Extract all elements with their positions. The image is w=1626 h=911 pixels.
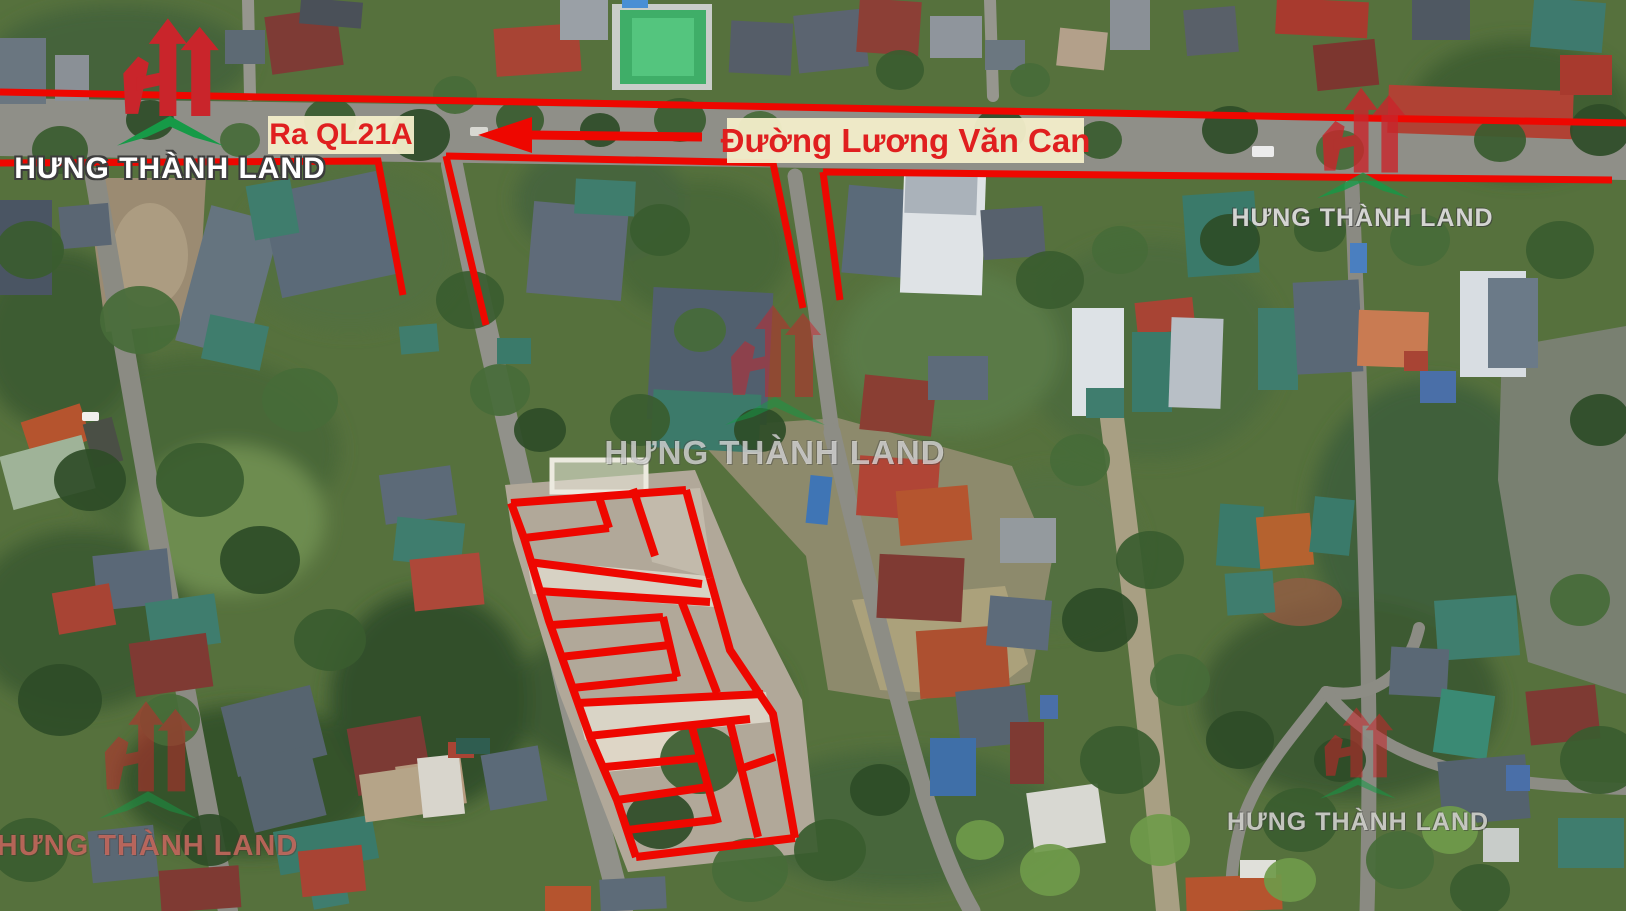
road-edge-line [823, 172, 1612, 180]
direction-arrow-tail [530, 135, 702, 137]
plot-boundary-line [686, 490, 710, 578]
watermark-center: HƯNG THÀNH LAND [630, 296, 920, 472]
watermark-text: HƯNG THÀNH LAND [0, 830, 298, 863]
plot-boundary-line [529, 562, 702, 584]
plot-boundary-line [743, 757, 775, 768]
watermark-bottom-left: HƯNG THÀNH LAND [25, 690, 270, 863]
street-name-label: Đường Lương Văn Can [727, 118, 1084, 163]
watermark-text: HƯNG THÀNH LAND [14, 152, 326, 186]
hung-thanh-land-logo [1320, 698, 1396, 808]
plot-boundary-line [524, 528, 609, 538]
plot-boundary-line [578, 694, 763, 703]
plot-boundary-line [633, 489, 655, 556]
aerial-land-advert: HƯNG THÀNH LAND HƯNG THÀNH LAND HƯNG THÀ… [0, 0, 1626, 911]
direction-arrow-head [478, 117, 532, 153]
hung-thanh-land-logo [725, 296, 825, 434]
plot-boundary-line [552, 617, 663, 625]
plot-boundary-line [692, 727, 718, 823]
plot-boundary-line [627, 820, 714, 830]
plot-boundary-line [588, 719, 750, 736]
plot-boundary-line [730, 722, 758, 837]
watermark-text: HƯNG THÀNH LAND [604, 434, 945, 472]
direction-label: Ra QL21A [268, 116, 414, 154]
plot-boundary-line [572, 677, 677, 688]
plot-boundary-line [560, 645, 670, 657]
road-edge-line [446, 156, 803, 308]
hung-thanh-land-logo [116, 12, 224, 152]
watermark-text: HƯNG THÀNH LAND [1231, 204, 1493, 233]
road-edge-line [823, 172, 840, 300]
watermark-bottom-right: HƯNG THÀNH LAND [1258, 698, 1458, 837]
hung-thanh-land-logo [99, 690, 197, 830]
watermark-top-left: HƯNG THÀNH LAND [25, 12, 315, 186]
plot-boundary-line [605, 758, 700, 767]
watermark-text: HƯNG THÀNH LAND [1227, 808, 1489, 837]
watermark-top-right: HƯNG THÀNH LAND [1245, 82, 1480, 233]
plot-boundary-line [681, 600, 717, 693]
plot-boundary-line [636, 838, 795, 857]
road-edge-line [446, 156, 486, 325]
plot-boundary-line [617, 787, 708, 800]
hung-thanh-land-logo [1317, 82, 1409, 204]
